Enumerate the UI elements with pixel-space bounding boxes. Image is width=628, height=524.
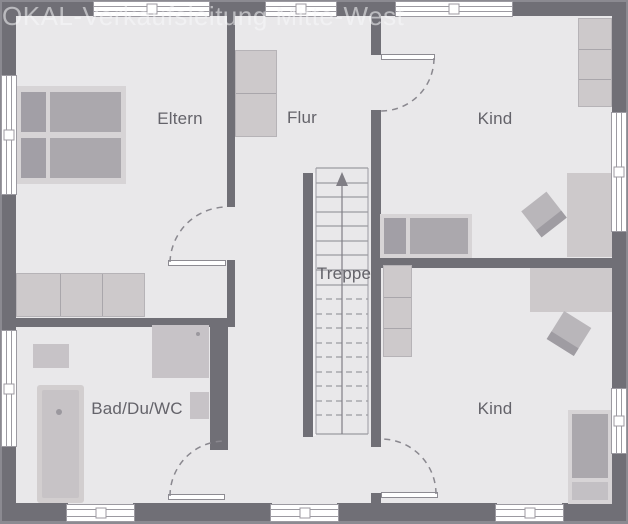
single-bed: [380, 214, 472, 258]
floor-plan: Eltern Flur Kind Treppe Bad/Du/WC Kind O…: [0, 0, 628, 524]
wall-kind-divider: [381, 258, 612, 268]
exterior-wall-right: [612, 232, 626, 390]
window: [1, 330, 17, 447]
room-label-kind-bottom: Kind: [478, 399, 513, 419]
wardrobe: [235, 50, 277, 137]
window-mullion: [614, 416, 625, 427]
window-mullion: [614, 167, 625, 178]
exterior-wall-left: [2, 447, 16, 521]
bed-pillow: [21, 138, 46, 178]
window-mullion: [95, 508, 106, 519]
room-label-eltern: Eltern: [157, 109, 203, 129]
door-kind-top: [381, 54, 435, 60]
window-mullion: [299, 508, 310, 519]
window-mullion: [449, 4, 460, 15]
window: [611, 388, 627, 454]
bed-mattress: [50, 138, 121, 178]
shower-drain: [196, 332, 200, 336]
door-bad: [168, 494, 225, 500]
bed-pillow: [572, 482, 608, 500]
window-mullion: [4, 383, 15, 394]
bed-pillow: [384, 218, 406, 254]
desk: [567, 173, 612, 257]
desk: [530, 268, 612, 312]
bathtub-drain: [56, 409, 62, 415]
shower: [152, 325, 209, 378]
window-mullion: [4, 130, 15, 141]
window: [1, 75, 17, 195]
exterior-wall-bottom: [133, 503, 272, 521]
exterior-wall-right: [612, 2, 626, 112]
wc-toilet: [190, 392, 209, 419]
exterior-wall-top: [513, 2, 626, 16]
room-label-treppe: Treppe: [317, 264, 371, 284]
wall-stair-left: [303, 173, 313, 437]
bed-mattress: [50, 92, 121, 132]
wardrobe: [16, 273, 145, 317]
window: [495, 504, 564, 522]
bathtub: [37, 385, 84, 503]
wardrobe: [383, 265, 412, 357]
wall-stair-right-stub: [371, 493, 381, 521]
bed-mattress: [572, 414, 608, 478]
room-label-kind-top: Kind: [478, 109, 513, 129]
bed-pillow: [21, 92, 46, 132]
window: [611, 112, 627, 232]
door-kind-bottom: [381, 492, 438, 498]
single-bed: [568, 410, 612, 504]
door-eltern: [168, 260, 226, 266]
double-bed: [16, 86, 126, 184]
room-label-flur: Flur: [287, 108, 317, 128]
wall-eltern-flur: [227, 260, 235, 327]
stair-wall-edge: [313, 173, 316, 436]
bathtub-inner: [42, 390, 79, 498]
wall-eltern-flur: [227, 16, 235, 207]
window: [270, 504, 339, 522]
exterior-wall-bottom: [337, 503, 497, 521]
window: [66, 504, 135, 522]
window: [395, 1, 513, 17]
watermark-text: OKAL-Verkaufsleitung Mitte-West: [2, 1, 404, 32]
bed-mattress: [410, 218, 468, 254]
room-label-bad: Bad/Du/WC: [91, 399, 183, 419]
wardrobe: [578, 18, 612, 107]
exterior-wall-right: [612, 453, 626, 521]
wall-stair-right: [371, 110, 381, 447]
window-mullion: [524, 508, 535, 519]
washbasin: [33, 344, 69, 368]
exterior-wall-left: [2, 195, 16, 330]
wall-bad-right: [210, 318, 228, 450]
